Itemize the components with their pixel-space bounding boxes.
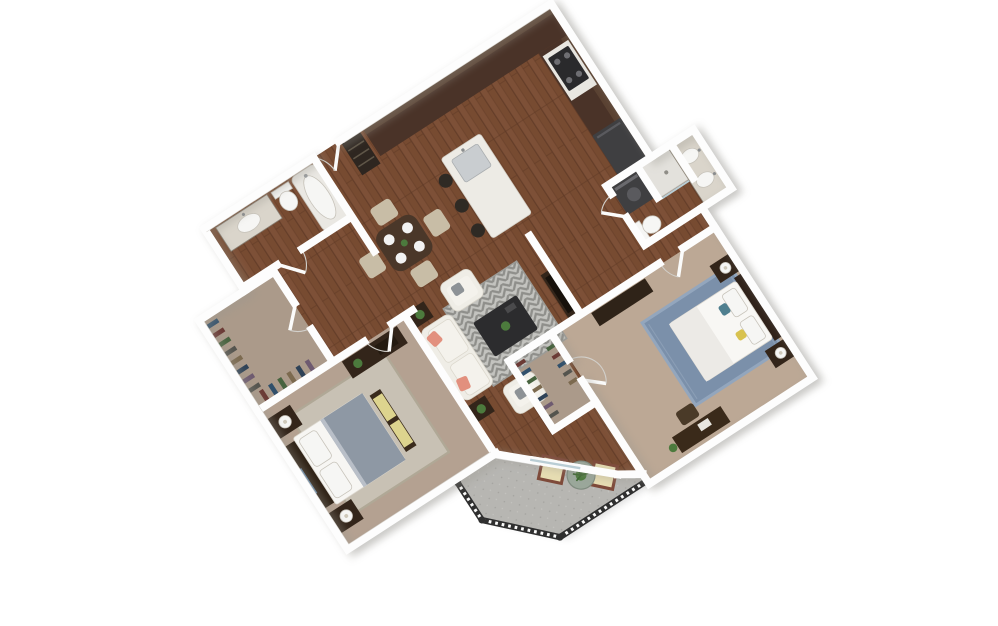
floor-plan-canvas [0, 0, 998, 626]
floor-plan-svg [0, 0, 998, 626]
floor-plan-group [159, 0, 851, 626]
